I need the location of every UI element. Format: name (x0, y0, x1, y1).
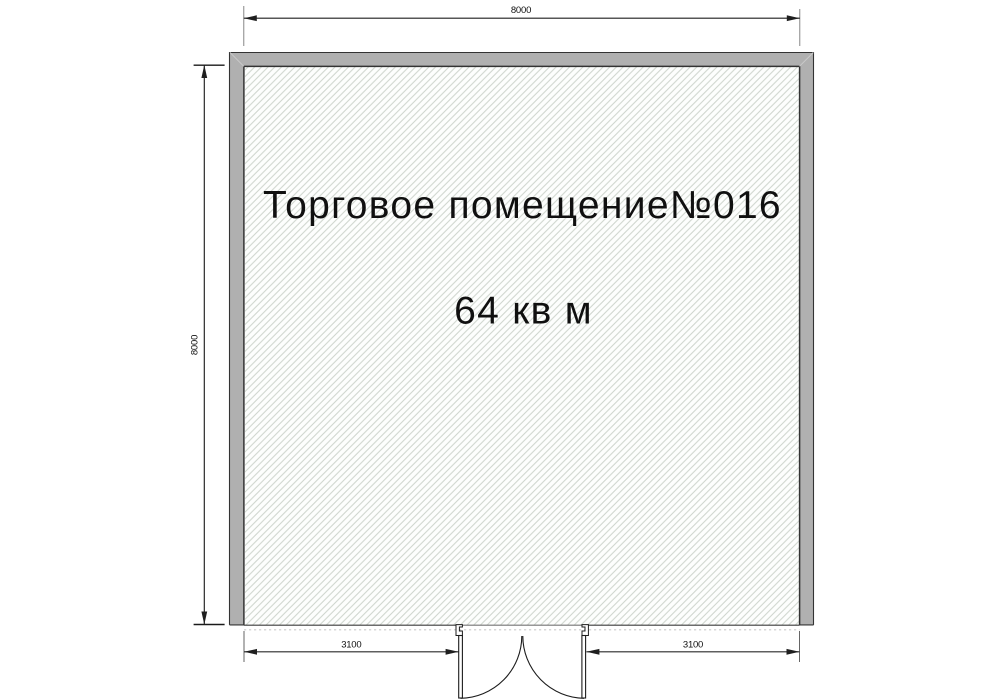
svg-text:3100: 3100 (341, 640, 361, 651)
svg-text:3100: 3100 (683, 640, 703, 651)
svg-text:64 кв м: 64 кв м (454, 290, 593, 333)
svg-text:Торговое помещение№016: Торговое помещение№016 (263, 184, 782, 227)
svg-text:8000: 8000 (511, 5, 531, 16)
svg-text:8000: 8000 (190, 335, 201, 355)
